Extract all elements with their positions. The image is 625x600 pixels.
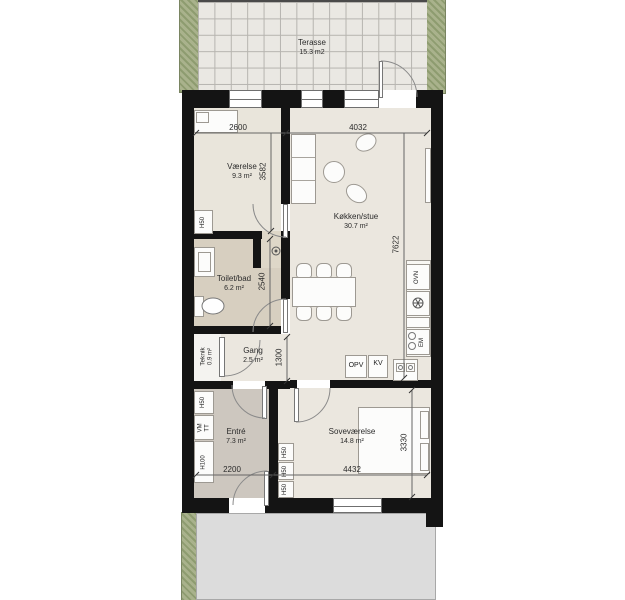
terrace-door-leaf (379, 61, 383, 98)
wall-koekken-sovevaerelse (290, 380, 297, 388)
room-area: 2.5 m² (228, 356, 278, 365)
wall-bottom (182, 498, 229, 513)
radiator-h50-vaerelse: H50 (194, 210, 213, 234)
room-name: Toilet/bad (202, 274, 266, 284)
dining-chair (336, 263, 352, 278)
cabinet-label: H50 (201, 397, 208, 408)
wall-toilet-bottom (194, 326, 281, 334)
kitchen-sink-bowl (406, 363, 415, 372)
entrance-door-opening (229, 498, 265, 513)
bathroom-sink-basin (198, 252, 211, 272)
pillow (420, 443, 429, 471)
cooktop (406, 291, 430, 316)
window-koekken-wide (344, 90, 379, 108)
pillow (196, 112, 209, 123)
cabinet-label: H100 (201, 455, 208, 469)
wardrobe-h50: H50 (278, 443, 294, 461)
room-area: 14.8 m² (314, 437, 390, 446)
dining-chair (336, 306, 352, 321)
entrance-door-leaf (264, 471, 269, 506)
label-koekken: Køkken/stue 30.7 m² (324, 212, 388, 231)
coffee-table-round (323, 161, 345, 183)
dishwasher-label: OPV (345, 362, 367, 370)
sofa-cushion-line (292, 180, 315, 181)
toilet-tank (194, 296, 204, 317)
entre-door-leaf (262, 386, 267, 419)
pillow (420, 411, 429, 439)
room-area: 30.7 m² (324, 222, 388, 231)
dim-4032: 4032 (334, 123, 382, 132)
dining-table (292, 277, 356, 307)
room-area: 0.9 m² (207, 334, 214, 378)
fridge-label: KV (368, 360, 388, 368)
wall-entre-sovevaerelse (269, 381, 278, 498)
sofa-cushion-line (292, 157, 315, 158)
cabinet-h100-entre: H100 (194, 441, 214, 483)
label-gang: Gang 2.5 m² (228, 346, 278, 365)
dim-3330: 3330 (400, 423, 409, 463)
hedge-left-top (180, 0, 198, 92)
dim-2200: 2200 (208, 465, 256, 474)
label-sovevaerelse: Soveværelse 14.8 m² (314, 427, 390, 446)
window-sovevaerelse (333, 498, 382, 513)
oven: OVN (406, 264, 430, 290)
teknik-door-leaf (219, 337, 225, 377)
wardrobe-h50: H50 (278, 462, 294, 480)
cabinet-h50-entre: H50 (194, 391, 214, 414)
room-name: Teknik (200, 334, 208, 378)
dim-1300: 1300 (275, 338, 284, 378)
dim-7622: 7622 (392, 225, 401, 265)
dining-chair (296, 263, 312, 278)
wall-top (323, 90, 344, 108)
label-terrace: Terasse 15.3 m2 (280, 38, 344, 57)
room-name: Entré (206, 427, 266, 437)
wall-right (431, 90, 443, 513)
wall-toilet-right (281, 231, 290, 299)
kitchen-cabinet (406, 317, 430, 328)
dining-chair (316, 306, 332, 321)
label-toilet: Toilet/bad 6.2 m² (202, 274, 266, 293)
kitchen-sink-bowl (396, 363, 405, 372)
dim-2540: 2540 (258, 262, 267, 302)
dim-3582: 3582 (259, 152, 268, 192)
extractor-label: EM (419, 337, 426, 346)
dim-4432: 4432 (328, 465, 376, 474)
wardrobe-label: H50 (283, 446, 290, 457)
dining-chair (296, 306, 312, 321)
dim-2600: 2600 (214, 123, 262, 132)
extractor-unit: EM (406, 329, 430, 355)
label-entre: Entré 7.3 m² (206, 427, 266, 446)
window-koekken-small (301, 90, 323, 108)
washer-label: VM (197, 423, 203, 432)
hedge-left-bottom (182, 513, 196, 600)
room-name: Soveværelse (314, 427, 390, 437)
wall-koekken-sovevaerelse (330, 380, 431, 388)
room-area: 6.2 m² (202, 284, 266, 293)
pavement (196, 513, 436, 600)
oven-label: OVN (415, 270, 422, 283)
radiator-label: H50 (200, 216, 207, 227)
room-name: Køkken/stue (324, 212, 388, 222)
wall-recess (425, 148, 431, 203)
floor-plan: H50 OVN EM OPV KV H50 VM TT H100 H50 H50… (0, 0, 625, 600)
wall-stub-bottom-right (426, 513, 443, 527)
wall-gang-entre (182, 381, 233, 389)
vaerelse-door-leaf (283, 204, 288, 238)
sofa (291, 134, 316, 204)
terrace-door-opening (379, 90, 416, 108)
wall-bottom (265, 498, 333, 513)
wardrobe-label: H50 (283, 484, 290, 495)
label-teknik: Teknik 0.9 m² (200, 334, 215, 378)
hedge-right-top (427, 0, 445, 93)
wardrobe-h50: H50 (278, 481, 294, 498)
room-area: 15.3 m2 (280, 48, 344, 57)
dining-chair (316, 263, 332, 278)
room-name: Terasse (280, 38, 344, 48)
wardrobe-label: H50 (283, 465, 290, 476)
wall-vaerelse-koekken (281, 108, 290, 204)
wall-top (262, 90, 301, 108)
sovevaerelse-door-leaf (294, 388, 299, 422)
room-area: 7.3 m² (206, 437, 266, 446)
wall-left (182, 90, 194, 513)
window-vaerelse (229, 90, 262, 108)
wall-bottom (382, 498, 443, 513)
toilet-door-leaf (283, 299, 288, 333)
room-name: Gang (228, 346, 278, 356)
